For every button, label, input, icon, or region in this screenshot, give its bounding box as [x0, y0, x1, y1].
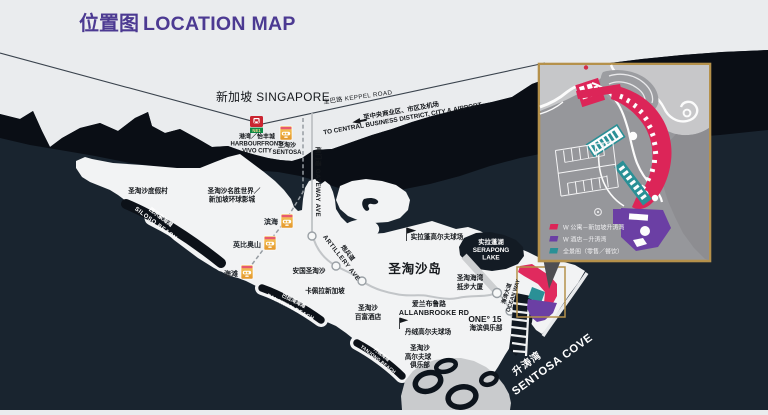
svg-text:闸门道 GATEWAY AVE: 闸门道 GATEWAY AVE: [314, 147, 322, 217]
svg-text:新加坡 SINGAPORE: 新加坡 SINGAPORE: [216, 90, 330, 104]
svg-text:圣淘沙岛: 圣淘沙岛: [387, 261, 441, 276]
svg-text:卡佩拉新加坡: 卡佩拉新加坡: [305, 286, 345, 295]
svg-text:俱乐部: 俱乐部: [409, 360, 430, 369]
svg-text:港湾／怡丰城: 港湾／怡丰城: [239, 133, 275, 141]
svg-text:LOCATION MAP: LOCATION MAP: [143, 13, 296, 35]
svg-text:W 公寓－新加坡升涛湾: W 公寓－新加坡升涛湾: [563, 224, 624, 232]
svg-text:圣淘沙: 圣淘沙: [278, 141, 296, 149]
svg-text:圣淘沙名胜世界／: 圣淘沙名胜世界／: [207, 186, 261, 195]
svg-text:LAKE: LAKE: [482, 255, 500, 262]
svg-text:海滨俱乐部: 海滨俱乐部: [470, 323, 503, 332]
svg-text:ALLANBROOKE RD: ALLANBROOKE RD: [399, 309, 469, 317]
svg-text:英比奥山: 英比奥山: [232, 240, 261, 249]
svg-text:VIVO CITY: VIVO CITY: [242, 149, 272, 155]
svg-text:圣淘海湾: 圣淘海湾: [456, 273, 484, 282]
svg-text:SERAPONG: SERAPONG: [473, 247, 510, 254]
svg-text:圣淘沙: 圣淘沙: [409, 343, 430, 352]
svg-text:ONE° 15: ONE° 15: [468, 314, 501, 324]
svg-text:NE1: NE1: [252, 128, 261, 133]
svg-text:实拉蓬湖: 实拉蓬湖: [478, 237, 504, 246]
svg-text:安国圣淘沙: 安国圣淘沙: [293, 266, 326, 275]
svg-text:新加坡环球影城: 新加坡环球影城: [209, 195, 256, 204]
svg-text:HARBOURFRONT/: HARBOURFRONT/: [231, 142, 284, 148]
svg-text:圣淘沙度假村: 圣淘沙度假村: [127, 186, 168, 195]
svg-text:抵步大厦: 抵步大厦: [457, 282, 484, 291]
svg-text:百富酒店: 百富酒店: [355, 312, 382, 321]
svg-text:W 酒店－升涛湾: W 酒店－升涛湾: [563, 236, 606, 244]
svg-text:滨海: 滨海: [264, 217, 278, 226]
svg-text:SENTOSA: SENTOSA: [273, 150, 303, 156]
svg-text:高尔夫球: 高尔夫球: [405, 352, 432, 361]
svg-text:位置图: 位置图: [79, 11, 139, 35]
svg-text:圣淘沙: 圣淘沙: [357, 303, 378, 312]
svg-text:海滩: 海滩: [224, 269, 238, 278]
svg-text:全景阁（零售／餐饮）: 全景阁（零售／餐饮）: [563, 248, 623, 256]
svg-text:实拉蓬高尔夫球场: 实拉蓬高尔夫球场: [411, 232, 464, 241]
svg-text:丹绒高尔夫球场: 丹绒高尔夫球场: [404, 327, 452, 336]
svg-text:爱兰布鲁路: 爱兰布鲁路: [412, 299, 446, 308]
